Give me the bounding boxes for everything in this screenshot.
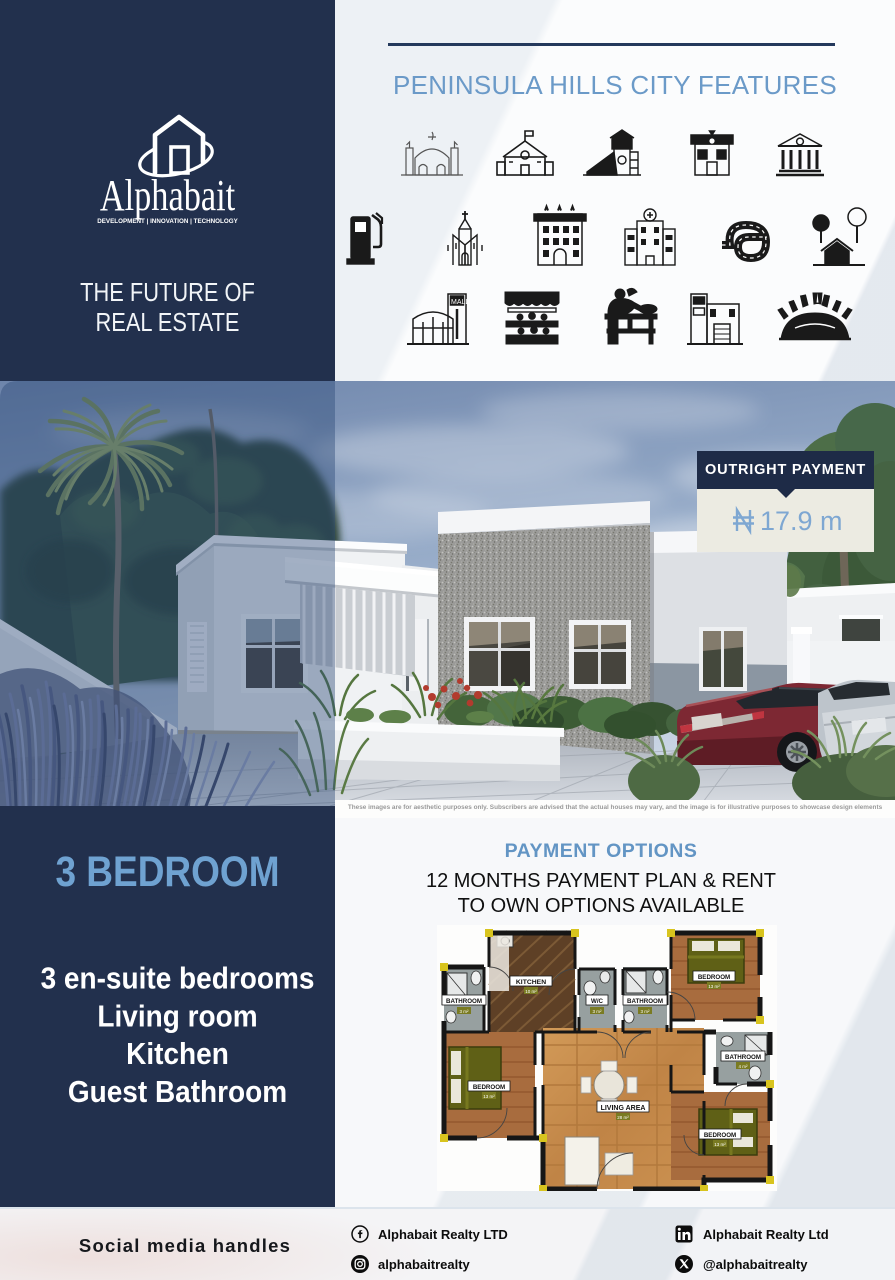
svg-text:3 m²: 3 m² [593, 1009, 603, 1014]
svg-text:BEDROOM: BEDROOM [698, 974, 730, 981]
svg-text:LIVING AREA: LIVING AREA [601, 1105, 646, 1112]
svg-text:W/C: W/C [591, 998, 604, 1005]
svg-text:3 m²: 3 m² [460, 1009, 470, 1014]
svg-text:BATHROOM: BATHROOM [725, 1054, 761, 1061]
svg-text:13 m²: 13 m² [483, 1094, 495, 1099]
svg-text:28 m²: 28 m² [617, 1115, 629, 1120]
svg-text:BATHROOM: BATHROOM [446, 998, 482, 1005]
svg-text:10 m²: 10 m² [525, 989, 537, 994]
svg-text:BEDROOM: BEDROOM [473, 1084, 505, 1091]
svg-text:KITCHEN: KITCHEN [516, 979, 546, 986]
svg-text:4 m²: 4 m² [739, 1064, 749, 1069]
svg-text:3 m²: 3 m² [641, 1009, 651, 1014]
svg-text:13 m²: 13 m² [708, 984, 720, 989]
svg-text:13 m²: 13 m² [714, 1142, 726, 1147]
svg-text:MALL: MALL [451, 299, 469, 306]
svg-text:17.9 m: 17.9 m [760, 506, 843, 536]
svg-text:BATHROOM: BATHROOM [627, 998, 663, 1005]
svg-text:BEDROOM: BEDROOM [704, 1132, 736, 1139]
